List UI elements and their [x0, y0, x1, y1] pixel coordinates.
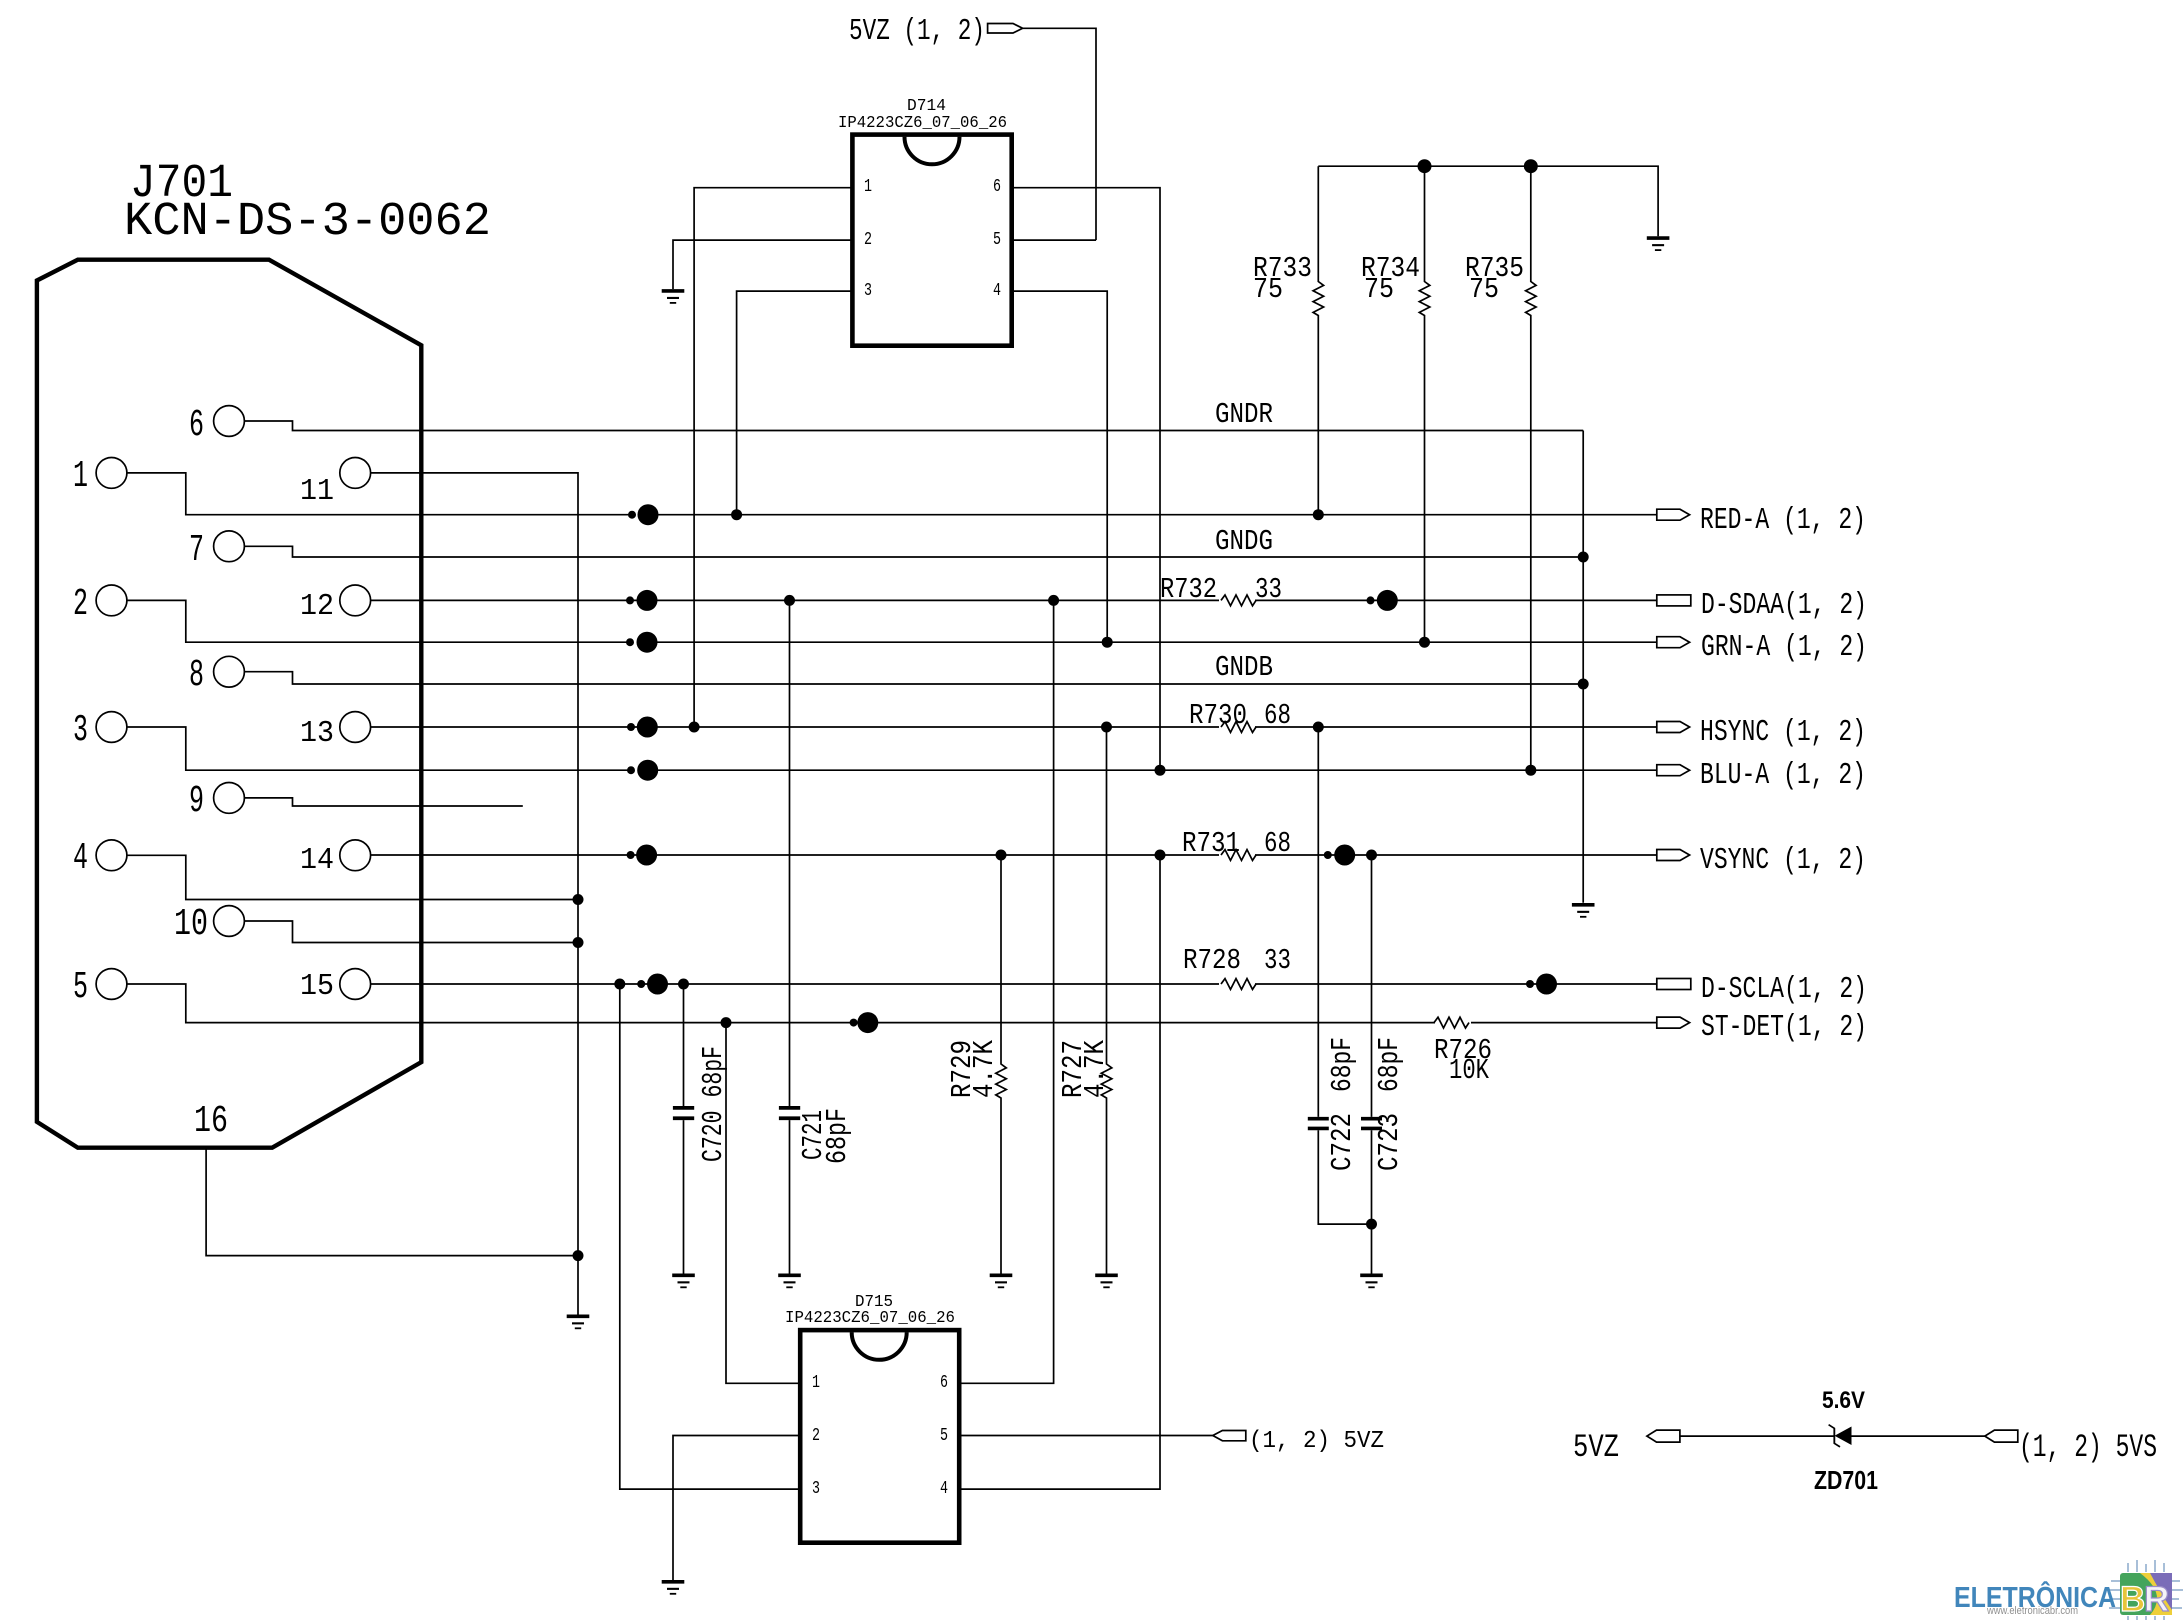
svg-text:(1, 2) 5VZ: (1, 2) 5VZ: [1249, 1428, 1384, 1455]
svg-text:6: 6: [940, 1373, 948, 1393]
svg-text:4.7K: 4.7K: [968, 1040, 1001, 1098]
svg-text:www.eletronicabr.com: www.eletronicabr.com: [1986, 1605, 2078, 1617]
svg-text:68pF: 68pF: [1373, 1037, 1406, 1092]
svg-text:R731: R731: [1182, 827, 1240, 860]
svg-text:13: 13: [300, 716, 334, 751]
svg-text:14: 14: [300, 843, 334, 878]
svg-text:BLU-A (1, 2): BLU-A (1, 2): [1700, 758, 1866, 793]
svg-text:RED-A (1, 2): RED-A (1, 2): [1700, 503, 1866, 538]
svg-text:4.7K: 4.7K: [1079, 1040, 1112, 1098]
svg-text:D-SDAA(1, 2): D-SDAA(1, 2): [1701, 588, 1867, 623]
svg-text:4: 4: [993, 281, 1001, 301]
svg-text:75: 75: [1364, 273, 1394, 306]
svg-text:IP4223CZ6_07_06_26: IP4223CZ6_07_06_26: [785, 1309, 955, 1328]
svg-text:R732: R732: [1160, 573, 1217, 606]
svg-text:GNDG: GNDG: [1215, 525, 1273, 558]
svg-text:11: 11: [300, 474, 334, 509]
svg-text:GNDR: GNDR: [1215, 398, 1273, 431]
svg-text:68pF: 68pF: [821, 1108, 854, 1164]
svg-text:C723: C723: [1373, 1113, 1406, 1171]
svg-text:1: 1: [73, 455, 88, 498]
svg-text:R730: R730: [1189, 699, 1247, 732]
svg-text:1: 1: [864, 177, 872, 197]
svg-text:10: 10: [174, 903, 208, 946]
svg-text:8: 8: [189, 654, 204, 697]
svg-text:75: 75: [1469, 273, 1499, 306]
svg-text:5VZ: 5VZ: [1573, 1429, 1619, 1466]
svg-text:R: R: [2144, 1580, 2169, 1619]
svg-text:9: 9: [189, 780, 204, 823]
svg-text:6: 6: [189, 404, 204, 447]
svg-text:33: 33: [1264, 944, 1291, 977]
svg-text:6: 6: [993, 177, 1001, 197]
svg-text:68pF: 68pF: [1326, 1037, 1359, 1092]
svg-text:15: 15: [300, 969, 334, 1004]
svg-text:B: B: [2120, 1580, 2145, 1619]
svg-text:VSYNC (1, 2): VSYNC (1, 2): [1700, 843, 1866, 878]
svg-text:(1, 2) 5VS: (1, 2) 5VS: [2019, 1429, 2157, 1466]
svg-text:ZD701: ZD701: [1814, 1465, 1878, 1495]
svg-text:GRN-A (1, 2): GRN-A (1, 2): [1701, 630, 1867, 665]
svg-text:2: 2: [812, 1426, 820, 1446]
svg-text:ST-DET(1, 2): ST-DET(1, 2): [1701, 1010, 1867, 1045]
svg-text:C722: C722: [1326, 1113, 1359, 1171]
svg-text:5.6V: 5.6V: [1822, 1387, 1865, 1414]
svg-text:4: 4: [73, 837, 88, 880]
svg-text:KCN-DS-3-0062: KCN-DS-3-0062: [124, 196, 491, 249]
svg-text:5: 5: [940, 1426, 948, 1446]
svg-text:2: 2: [73, 583, 88, 626]
svg-text:4: 4: [940, 1479, 948, 1499]
svg-text:16: 16: [194, 1100, 228, 1143]
svg-text:C720 68pF: C720 68pF: [697, 1046, 730, 1162]
svg-text:GNDB: GNDB: [1215, 651, 1273, 684]
svg-text:75: 75: [1253, 273, 1283, 306]
svg-text:5VZ (1, 2): 5VZ (1, 2): [849, 14, 985, 49]
svg-text:2: 2: [864, 230, 872, 250]
svg-text:5: 5: [73, 966, 88, 1009]
svg-text:12: 12: [300, 589, 334, 624]
svg-text:10K: 10K: [1449, 1054, 1489, 1087]
svg-text:R728: R728: [1183, 944, 1241, 977]
svg-text:5: 5: [993, 230, 1001, 250]
svg-text:IP4223CZ6_07_06_26: IP4223CZ6_07_06_26: [838, 114, 1007, 133]
svg-text:HSYNC (1, 2): HSYNC (1, 2): [1700, 715, 1866, 750]
svg-text:D-SCLA(1, 2): D-SCLA(1, 2): [1701, 972, 1867, 1007]
svg-text:3: 3: [73, 709, 88, 752]
svg-text:7: 7: [189, 529, 204, 572]
svg-text:1: 1: [812, 1373, 820, 1393]
svg-text:3: 3: [812, 1479, 820, 1499]
svg-text:3: 3: [864, 281, 872, 301]
